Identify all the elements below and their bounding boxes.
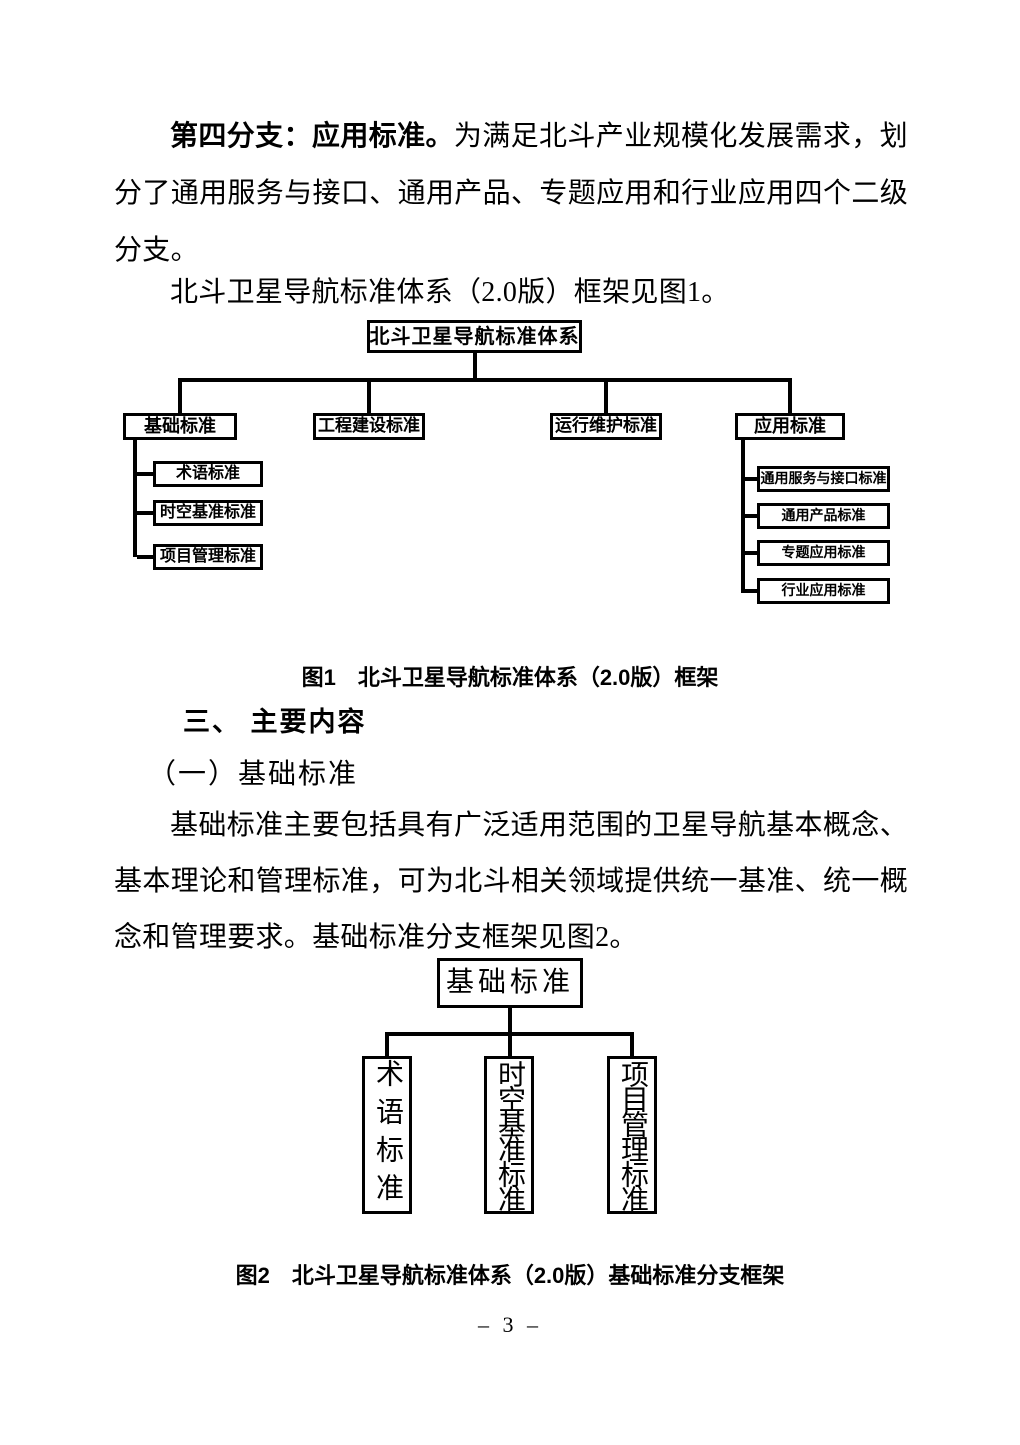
- figure2-tree-diagram: 基础标准 术语标准 时空基准标准 项目管理标准: [0, 954, 1020, 1220]
- figure2-caption: 图2 北斗卫星导航标准体系（2.0版）基础标准分支框架: [0, 1258, 1020, 1290]
- fig1-sub-special-application-standards: 专题应用标准: [757, 540, 890, 566]
- document-page: 第四分支：应用标准。为满足北斗产业规模化发展需求，划分了通用服务与接口、通用产品…: [0, 0, 1020, 1445]
- fig1-root-node: 北斗卫星导航标准体系: [367, 320, 582, 353]
- figure1-tree-diagram: 北斗卫星导航标准体系 基础标准 工程建设标准 运行维护标准 应用标准 术语标准 …: [0, 318, 1020, 610]
- fig1-sub-terminology-standards: 术语标准: [153, 461, 263, 487]
- fig2-sub-project-management-standards: 项目管理标准: [607, 1056, 657, 1214]
- fig2-root-node: 基础标准: [437, 958, 583, 1008]
- figure1-caption: 图1 北斗卫星导航标准体系（2.0版）框架: [0, 660, 1020, 692]
- fig1-right-stub3-connector: [745, 551, 757, 555]
- fig1-drop-engineering-connector: [367, 382, 371, 413]
- fig1-branch-engineering-standards: 工程建设标准: [313, 413, 425, 440]
- fig2-drop1-connector: [385, 1036, 389, 1056]
- fig1-branch-operation-standards: 运行维护标准: [550, 413, 662, 440]
- fig2-sub-spacetime-datum-standards: 时空基准标准: [484, 1056, 534, 1214]
- fig1-left-subtree-spine-connector: [133, 440, 137, 557]
- fig1-branch-basic-standards: 基础标准: [123, 413, 237, 440]
- fig1-right-stub1-connector: [745, 477, 757, 481]
- paragraph-basic-standards: 基础标准主要包括具有广泛适用范围的卫星导航基本概念、基本理论和管理标准，可为北斗…: [114, 798, 908, 966]
- fig1-left-stub3-connector: [137, 555, 153, 559]
- fig1-drop-basic-connector: [178, 382, 182, 413]
- fig1-drop-operation-connector: [604, 382, 608, 413]
- fig1-sub-general-service-interface-standards: 通用服务与接口标准: [757, 466, 890, 492]
- fig1-right-stub4-connector: [745, 589, 757, 593]
- section-heading: 三、 主要内容: [183, 700, 367, 739]
- fig1-right-stub2-connector: [745, 514, 757, 518]
- fig2-drop2-connector: [508, 1036, 512, 1056]
- fig1-branch-application-standards: 应用标准: [735, 413, 845, 440]
- page-number: – 3 –: [0, 1312, 1020, 1338]
- fig1-sub-industry-application-standards: 行业应用标准: [757, 578, 890, 604]
- fig1-branch-rail-connector: [178, 378, 792, 382]
- paragraph-fourth-branch: 第四分支：应用标准。为满足北斗产业规模化发展需求，划分了通用服务与接口、通用产品…: [114, 108, 908, 279]
- fig1-sub-spacetime-datum-standards: 时空基准标准: [153, 500, 263, 526]
- paragraph-figure1-intro: 北斗卫星导航标准体系（2.0版）框架见图1。: [114, 268, 908, 318]
- fig1-sub-project-management-standards: 项目管理标准: [153, 544, 263, 570]
- fig1-left-stub1-connector: [137, 472, 153, 476]
- subsection-heading: （一）基础标准: [148, 752, 358, 792]
- fig1-root-stem-connector: [473, 353, 477, 378]
- fig2-root-stem-connector: [508, 1008, 512, 1032]
- fig1-drop-application-connector: [788, 382, 792, 413]
- fig2-drop3-connector: [630, 1036, 634, 1056]
- fig1-left-stub2-connector: [137, 511, 153, 515]
- paragraph-fourth-branch-lead: 第四分支：应用标准。: [170, 121, 454, 152]
- fig2-sub-terminology-standards: 术语标准: [362, 1056, 412, 1214]
- fig1-sub-general-product-standards: 通用产品标准: [757, 503, 890, 529]
